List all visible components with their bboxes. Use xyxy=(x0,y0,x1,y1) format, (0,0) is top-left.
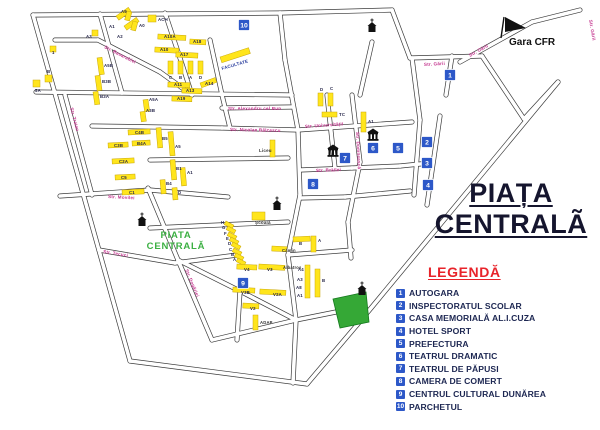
legend-item-label: PARCHETUL xyxy=(409,402,462,412)
building-label: B1 xyxy=(176,166,182,171)
legend-item: 9CENTRUL CULTURAL DUNĂREA xyxy=(396,388,598,401)
map-marker-number: 1 xyxy=(448,72,452,79)
building-label: B3B xyxy=(102,79,111,84)
legend: LEGENDĂ 1AUTOGARA 2INSPECTORATUL SCOLAR … xyxy=(396,264,598,413)
building-label: A13 xyxy=(186,88,195,93)
building-label: A2 xyxy=(117,34,123,39)
building-label: 1 xyxy=(52,50,55,55)
building-label: V4 xyxy=(244,267,250,272)
legend-title: LEGENDĂ xyxy=(428,264,598,280)
street-name-label: Str. Brăilei xyxy=(316,167,341,173)
street xyxy=(33,13,280,15)
building-label: B xyxy=(179,75,182,80)
legend-number-badge: 8 xyxy=(396,377,405,386)
building-label: A xyxy=(233,257,236,262)
street xyxy=(296,312,336,320)
building-label: A xyxy=(189,75,192,80)
building-label: B xyxy=(322,278,325,283)
building-label: D xyxy=(178,190,181,195)
legend-item: 7TEATRUL DE PĂPUSI xyxy=(396,363,598,376)
street xyxy=(392,10,410,58)
street xyxy=(307,325,357,384)
building-label: C2A xyxy=(119,159,128,164)
map-center-label-line1: PIATA xyxy=(160,230,191,241)
map-marker-number: 9 xyxy=(241,280,245,287)
church-icon xyxy=(358,285,367,289)
legend-item-label: CASA MEMORIALĂ AL.I.CUZA xyxy=(409,313,535,323)
building-label: D xyxy=(228,241,231,246)
street xyxy=(288,195,300,255)
building-block xyxy=(318,93,323,106)
building-label: V2A xyxy=(273,292,282,297)
church-icon xyxy=(368,22,377,26)
building-label: A1 xyxy=(368,119,374,124)
street-name-label: Str. Alexandru cel Bun xyxy=(228,106,281,111)
legend-item-label: HOTEL SPORT xyxy=(409,326,471,336)
park xyxy=(333,292,369,328)
legend-item: 1AUTOGARA xyxy=(396,287,598,300)
legend-number-badge: 1 xyxy=(396,289,405,298)
street xyxy=(348,162,360,222)
building-label: A10 xyxy=(160,47,169,52)
church-icon xyxy=(138,216,147,220)
poi-label: Liceu xyxy=(259,148,272,153)
building-block xyxy=(148,15,156,22)
legend-item-label: INSPECTORATUL SCOLAR xyxy=(409,301,522,311)
building-label: C xyxy=(169,75,172,80)
theater-icon xyxy=(369,134,371,139)
legend-number-badge: 2 xyxy=(396,301,405,310)
building-label: V3 xyxy=(267,267,273,272)
page-title-line2: CENTRALÃ xyxy=(425,209,597,240)
theater-icon xyxy=(329,150,331,155)
theater-icon xyxy=(336,150,338,155)
building-block xyxy=(198,61,203,74)
map-page: A1A2ACHA9A0A35AB1A10AA18A10A17CBADA11A13… xyxy=(0,0,600,430)
building-label: ACH xyxy=(158,17,168,22)
building-label: A9 xyxy=(121,9,127,14)
building-block xyxy=(45,75,52,82)
building-label: B xyxy=(299,241,302,246)
legend-number-badge: 3 xyxy=(396,314,405,323)
legend-number-badge: 4 xyxy=(396,327,405,336)
legend-item: 4HOTEL SPORT xyxy=(396,325,598,338)
theater-icon xyxy=(327,145,339,149)
street xyxy=(288,250,352,255)
street xyxy=(280,13,285,60)
map-marker-number: 2 xyxy=(425,139,429,146)
building-block xyxy=(315,269,320,297)
theater-icon xyxy=(328,149,338,151)
street-name-label: Str. Gării xyxy=(424,61,445,67)
page-title: PIAȚA CENTRALÃ xyxy=(425,178,597,240)
church-icon xyxy=(274,204,281,210)
page-title-line1: PIAȚA xyxy=(425,178,597,209)
legend-item: 2INSPECTORATUL SCOLAR xyxy=(396,300,598,313)
building-label: A1 xyxy=(187,170,193,175)
building-label: B4A xyxy=(137,141,146,146)
building-block xyxy=(188,61,193,74)
church-icon xyxy=(369,26,376,32)
legend-item: 3CASA MEMORIALĂ AL.I.CUZA xyxy=(396,312,598,325)
street xyxy=(222,95,230,128)
building-label: G xyxy=(222,225,226,230)
building-label: A5A xyxy=(149,97,158,102)
building-label: A0 xyxy=(139,23,145,28)
building-block xyxy=(168,61,173,74)
map-marker-number: 6 xyxy=(371,145,375,152)
building-label: A3 xyxy=(297,277,303,282)
legend-item-label: TEATRUL DRAMATIC xyxy=(409,351,497,361)
building-label: A14 xyxy=(205,81,214,86)
building-block xyxy=(33,80,40,87)
theater-icon xyxy=(368,133,378,135)
building-block xyxy=(328,93,333,106)
legend-item-label: TEATRUL DE PĂPUSI xyxy=(409,364,499,374)
street-name-label: Str. Nicolae Bălcescu xyxy=(230,127,281,133)
building-label: A19 xyxy=(177,96,186,101)
building-label: TC xyxy=(339,112,345,117)
map-marker-number: 3 xyxy=(425,160,429,167)
legend-item: 8CAMERA DE COMERT xyxy=(396,375,598,388)
building-block xyxy=(95,75,102,91)
building-label: 5A xyxy=(35,88,41,93)
building-block xyxy=(322,112,337,117)
theater-icon xyxy=(367,129,379,133)
building-label: B5 xyxy=(162,136,168,141)
legend-item-label: AUTOGARA xyxy=(409,288,459,298)
street xyxy=(524,82,558,119)
building-block xyxy=(252,212,265,220)
legend-item-label: CENTRUL CULTURAL DUNĂREA xyxy=(409,389,546,399)
theater-icon xyxy=(368,139,379,141)
building-label: A3 xyxy=(86,34,92,39)
legend-item-label: CAMERA DE COMERT xyxy=(409,376,502,386)
building-label: C4B xyxy=(135,130,144,135)
building-label: A8 xyxy=(296,285,302,290)
building-block xyxy=(178,61,183,74)
street-name-label: Str. Basarabiei xyxy=(104,44,137,64)
building-label: A5B xyxy=(104,63,113,68)
legend-number-badge: 10 xyxy=(396,402,405,411)
street-name-label: Str. Tecuci xyxy=(103,249,129,258)
street-name-label: Str. Movilei xyxy=(108,194,135,200)
building-label: A10A xyxy=(164,34,176,39)
street xyxy=(532,10,580,22)
building-label: A1 xyxy=(297,293,303,298)
building-label: V2 xyxy=(250,306,256,311)
building-label: C5 xyxy=(121,175,127,180)
street-name-label: Str. Domnească xyxy=(355,132,362,170)
street-name-label: Str. Gării xyxy=(588,19,597,41)
theater-icon xyxy=(328,155,339,157)
church-icon xyxy=(359,289,366,295)
building-label: A11 xyxy=(174,82,183,87)
theater-icon xyxy=(376,134,378,139)
building-block xyxy=(253,315,258,330)
building-label: B3A xyxy=(100,94,109,99)
building-label: A17 xyxy=(180,52,189,57)
legend-item-label: PREFECTURA xyxy=(409,339,469,349)
street xyxy=(482,56,524,119)
legend-items: 1AUTOGARA 2INSPECTORATUL SCOLAR 3CASA ME… xyxy=(396,287,598,413)
street xyxy=(130,361,307,384)
map-marker-number: 7 xyxy=(343,155,347,162)
building-label: A xyxy=(318,238,321,243)
map-marker-number: 10 xyxy=(240,22,248,29)
street xyxy=(412,58,420,120)
theater-icon xyxy=(332,150,334,155)
street xyxy=(360,42,372,95)
legend-number-badge: 9 xyxy=(396,390,405,399)
legend-number-badge: 5 xyxy=(396,339,405,348)
building-block xyxy=(92,30,98,36)
poi-label: Cămin xyxy=(282,248,296,253)
building-label: V3B xyxy=(241,290,250,295)
building-label: A18 xyxy=(193,39,202,44)
street xyxy=(298,130,300,195)
legend-item: 10PARCHETUL xyxy=(396,400,598,413)
poi-label: ADAP xyxy=(260,320,273,325)
building-label: D xyxy=(199,75,202,80)
street xyxy=(210,40,222,95)
map-marker-number: 8 xyxy=(311,181,315,188)
theater-icon xyxy=(372,134,374,139)
map-center-label-line2: CENTRALĂ xyxy=(147,241,206,252)
legend-number-badge: 6 xyxy=(396,352,405,361)
legend-item: 6TEATRUL DRAMATIC xyxy=(396,350,598,363)
building-label: C3B xyxy=(114,143,123,148)
gara-cfr-label: Gara CFR xyxy=(509,37,556,48)
building-label: D xyxy=(320,87,323,92)
building-label: C xyxy=(330,86,333,91)
building-block xyxy=(361,112,366,132)
building-label: A3B xyxy=(146,108,155,113)
church-icon xyxy=(273,200,282,204)
map-marker-number: 5 xyxy=(396,145,400,152)
building-block xyxy=(168,132,175,156)
building-block xyxy=(305,265,310,298)
building-label: A5 xyxy=(175,144,181,149)
building-label: B xyxy=(47,69,50,74)
church-icon xyxy=(139,220,146,226)
street xyxy=(300,197,345,198)
legend-item: 5PREFECTURA xyxy=(396,337,598,350)
building-label: B4 xyxy=(166,181,172,186)
building-block xyxy=(311,236,316,252)
legend-number-badge: 7 xyxy=(396,364,405,373)
building-label: A1 xyxy=(109,24,115,29)
poi-label: Albatros xyxy=(283,265,302,270)
